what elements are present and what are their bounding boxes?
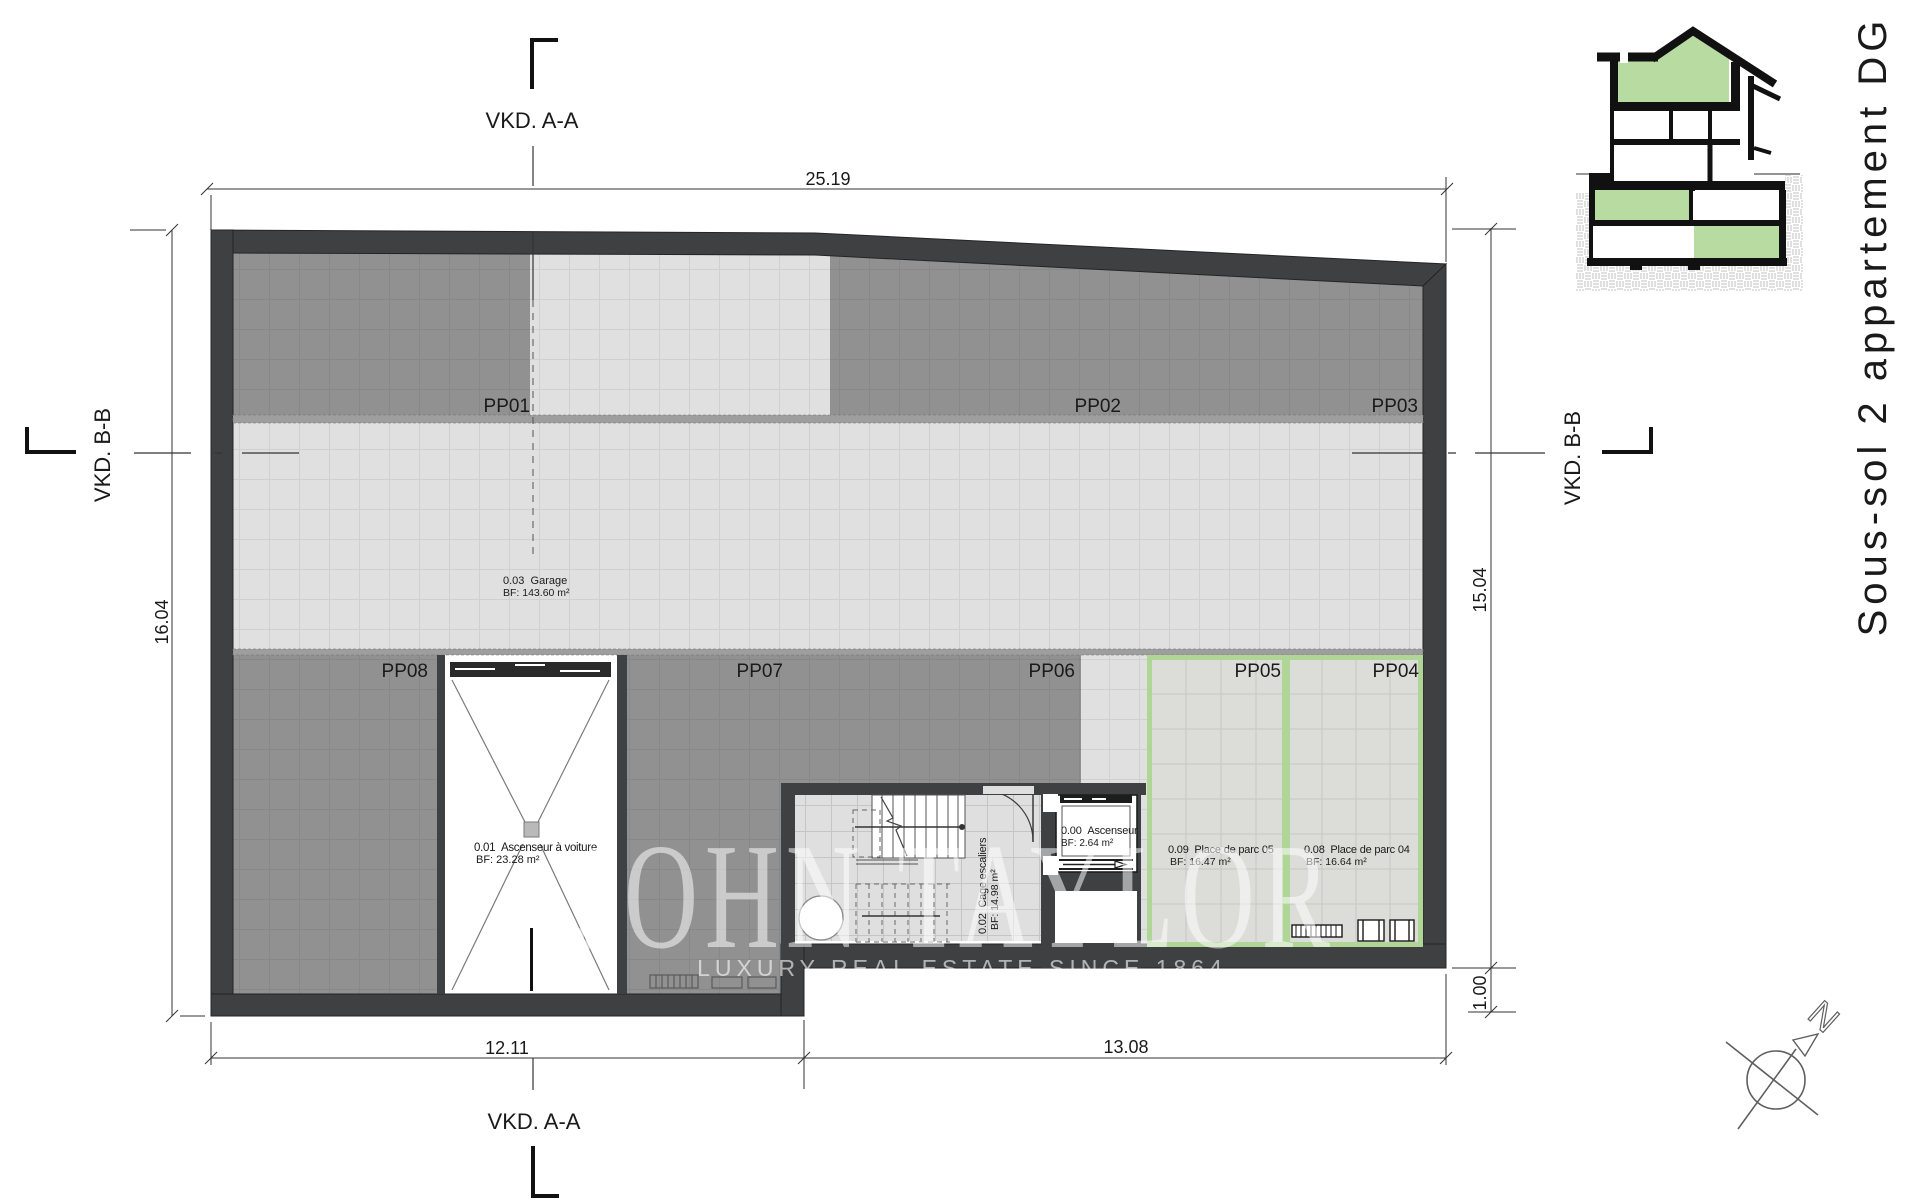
svg-text:PP03: PP03 bbox=[1372, 396, 1418, 417]
svg-text:PP05: PP05 bbox=[1235, 661, 1281, 682]
svg-text:BF: 23.28 m²: BF: 23.28 m² bbox=[476, 854, 540, 866]
svg-text:BF: 143.60 m²: BF: 143.60 m² bbox=[503, 587, 570, 599]
svg-text:VKD. A-A: VKD. A-A bbox=[488, 1109, 581, 1134]
svg-text:VKD. A-A: VKD. A-A bbox=[486, 108, 579, 133]
svg-text:VKD. B-B: VKD. B-B bbox=[1560, 411, 1585, 505]
svg-text:PP04: PP04 bbox=[1373, 661, 1420, 682]
svg-text:VKD. B-B: VKD. B-B bbox=[90, 408, 115, 502]
svg-text:PP01: PP01 bbox=[484, 396, 530, 417]
svg-text:0.03 Garage: 0.03 Garage bbox=[503, 575, 567, 587]
svg-text:LUXURY REAL ESTATE SINCE 1864: LUXURY REAL ESTATE SINCE 1864 bbox=[697, 955, 1227, 981]
svg-text:25.19: 25.19 bbox=[805, 169, 850, 189]
svg-text:PP07: PP07 bbox=[737, 661, 783, 682]
svg-text:16.04: 16.04 bbox=[152, 599, 172, 644]
svg-text:12.11: 12.11 bbox=[485, 1038, 529, 1058]
svg-text:PP08: PP08 bbox=[382, 661, 428, 682]
svg-text:13.08: 13.08 bbox=[1103, 1037, 1148, 1057]
svg-text:Sous-sol 2 appartement DG: Sous-sol 2 appartement DG bbox=[1851, 16, 1895, 637]
svg-text:1.00: 1.00 bbox=[1470, 975, 1490, 1010]
svg-text:PP02: PP02 bbox=[1075, 396, 1121, 417]
svg-text:PP06: PP06 bbox=[1029, 661, 1075, 682]
svg-text:15.04: 15.04 bbox=[1470, 567, 1490, 612]
